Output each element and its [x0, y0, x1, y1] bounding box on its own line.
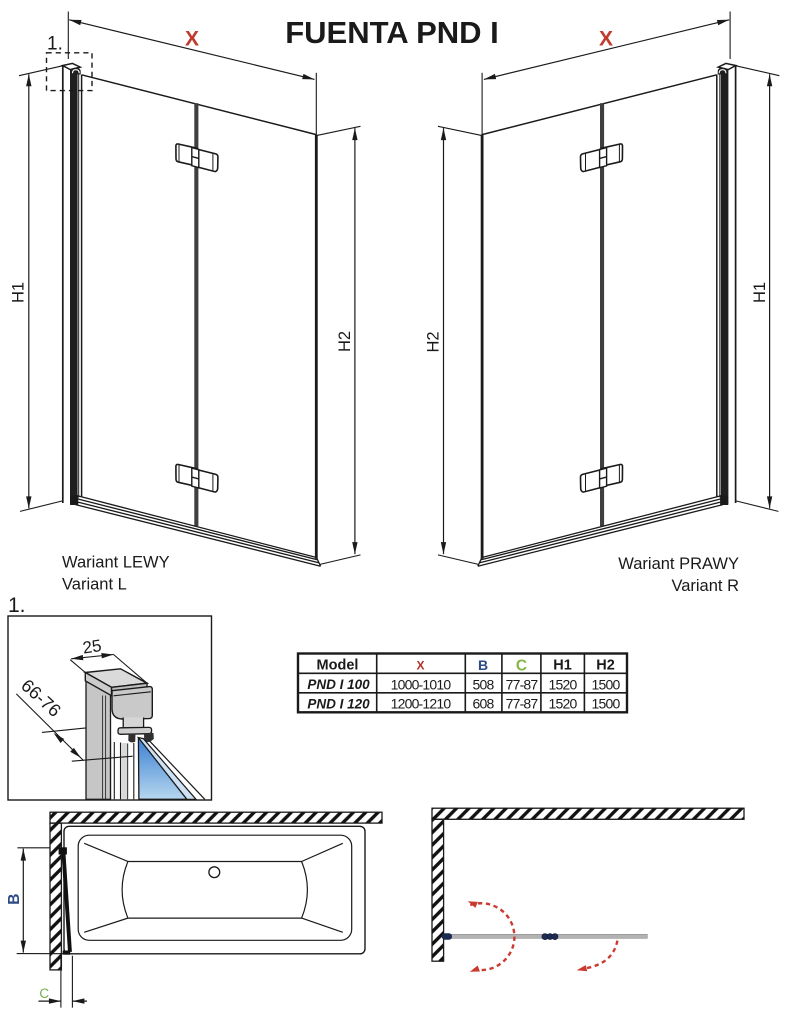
svg-text:B: B [6, 894, 23, 905]
svg-text:Model: Model [317, 658, 359, 674]
svg-text:X: X [416, 659, 424, 673]
svg-text:25: 25 [81, 636, 102, 657]
svg-text:Wariant PRAWY: Wariant PRAWY [618, 555, 739, 573]
svg-text:1520: 1520 [549, 696, 578, 712]
svg-text:1.: 1. [47, 34, 63, 55]
svg-text:PND I 120: PND I 120 [307, 696, 370, 711]
svg-text:508: 508 [473, 676, 495, 692]
svg-text:66-76: 66-76 [17, 675, 65, 721]
svg-text:77-87: 77-87 [506, 676, 539, 692]
svg-text:C: C [516, 657, 527, 674]
svg-text:H1: H1 [10, 282, 28, 303]
svg-text:H2: H2 [336, 331, 354, 352]
svg-text:1500: 1500 [592, 696, 621, 712]
svg-text:H1: H1 [751, 282, 769, 303]
svg-text:1500: 1500 [592, 676, 621, 692]
svg-text:H2: H2 [596, 658, 615, 674]
svg-text:77-87: 77-87 [506, 696, 539, 712]
svg-text:Wariant LEWY: Wariant LEWY [62, 554, 170, 572]
svg-text:1520: 1520 [549, 676, 578, 692]
svg-text:Variant R: Variant R [671, 577, 739, 595]
svg-text:B: B [478, 657, 488, 673]
svg-text:X: X [185, 28, 199, 51]
svg-text:X: X [599, 28, 613, 51]
svg-text:1.: 1. [8, 594, 26, 617]
svg-text:C: C [39, 986, 49, 1001]
svg-text:Variant L: Variant L [62, 576, 127, 594]
svg-text:H2: H2 [425, 331, 443, 352]
svg-text:1200-1210: 1200-1210 [391, 696, 452, 712]
svg-text:FUENTA PND I: FUENTA PND I [285, 15, 499, 50]
svg-text:PND I 100: PND I 100 [307, 677, 370, 692]
svg-text:608: 608 [473, 696, 495, 712]
svg-text:H1: H1 [553, 658, 572, 674]
svg-text:1000-1010: 1000-1010 [391, 676, 452, 692]
